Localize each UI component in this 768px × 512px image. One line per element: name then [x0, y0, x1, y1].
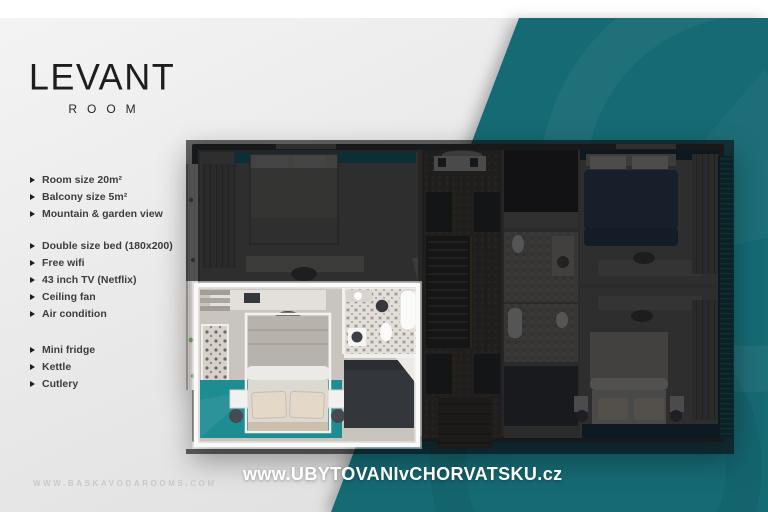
bullet-arrow-icon: [30, 194, 35, 200]
brand-logo: LEVANT ROOM: [22, 56, 182, 116]
bullet-arrow-icon: [30, 364, 35, 370]
floor-plan: [186, 140, 734, 454]
amenity-label: Air condition: [42, 308, 107, 320]
amenities-group-comfort: Double size bed (180x200)Free wifi43 inc…: [30, 237, 195, 322]
amenity-item: Kettle: [30, 358, 195, 375]
amenity-label: Cutlery: [42, 378, 78, 390]
bullet-arrow-icon: [30, 311, 35, 317]
watermark-url: WWW.BASKAVODAROOMS.COM: [33, 479, 217, 488]
bullet-arrow-icon: [30, 260, 35, 266]
amenity-item: Mini fridge: [30, 341, 195, 358]
amenity-item: Balcony size 5m²: [30, 188, 195, 205]
amenity-label: Mountain & garden view: [42, 208, 163, 220]
amenity-label: Ceiling fan: [42, 291, 96, 303]
bullet-arrow-icon: [30, 177, 35, 183]
amenity-label: 43 inch TV (Netflix): [42, 274, 137, 286]
website-url: www.UBYTOVANIvCHORVATSKU.cz: [243, 464, 563, 485]
amenity-label: Balcony size 5m²: [42, 191, 127, 203]
amenity-item: Ceiling fan: [30, 288, 195, 305]
bullet-arrow-icon: [30, 294, 35, 300]
brand-subtitle: ROOM: [22, 102, 192, 116]
amenity-label: Kettle: [42, 361, 71, 373]
bullet-arrow-icon: [30, 347, 35, 353]
featured-terrace: [344, 360, 414, 428]
promo-poster: LEVANT ROOM Room size 20m²Balcony size 5…: [0, 0, 768, 512]
featured-room: [196, 285, 418, 445]
amenities-group-kitchen: Mini fridgeKettleCutlery: [30, 341, 195, 392]
amenity-item: 43 inch TV (Netflix): [30, 271, 195, 288]
amenity-label: Room size 20m²: [42, 174, 122, 186]
amenity-item: Double size bed (180x200): [30, 237, 195, 254]
featured-bathroom: [342, 288, 418, 354]
amenity-item: Air condition: [30, 305, 195, 322]
brand-name: LEVANT: [22, 55, 182, 99]
amenity-label: Mini fridge: [42, 344, 95, 356]
bullet-arrow-icon: [30, 381, 35, 387]
featured-bed: [246, 314, 330, 432]
bullet-arrow-icon: [30, 277, 35, 283]
amenity-label: Free wifi: [42, 257, 85, 269]
bullet-arrow-icon: [30, 243, 35, 249]
amenity-item: Room size 20m²: [30, 171, 195, 188]
bullet-arrow-icon: [30, 211, 35, 217]
amenity-item: Cutlery: [30, 375, 195, 392]
amenity-item: Mountain & garden view: [30, 205, 195, 222]
amenities-group-room: Room size 20m²Balcony size 5m²Mountain &…: [30, 171, 195, 222]
amenity-label: Double size bed (180x200): [42, 240, 173, 252]
amenities-list: Room size 20m²Balcony size 5m²Mountain &…: [30, 171, 195, 392]
amenity-item: Free wifi: [30, 254, 195, 271]
